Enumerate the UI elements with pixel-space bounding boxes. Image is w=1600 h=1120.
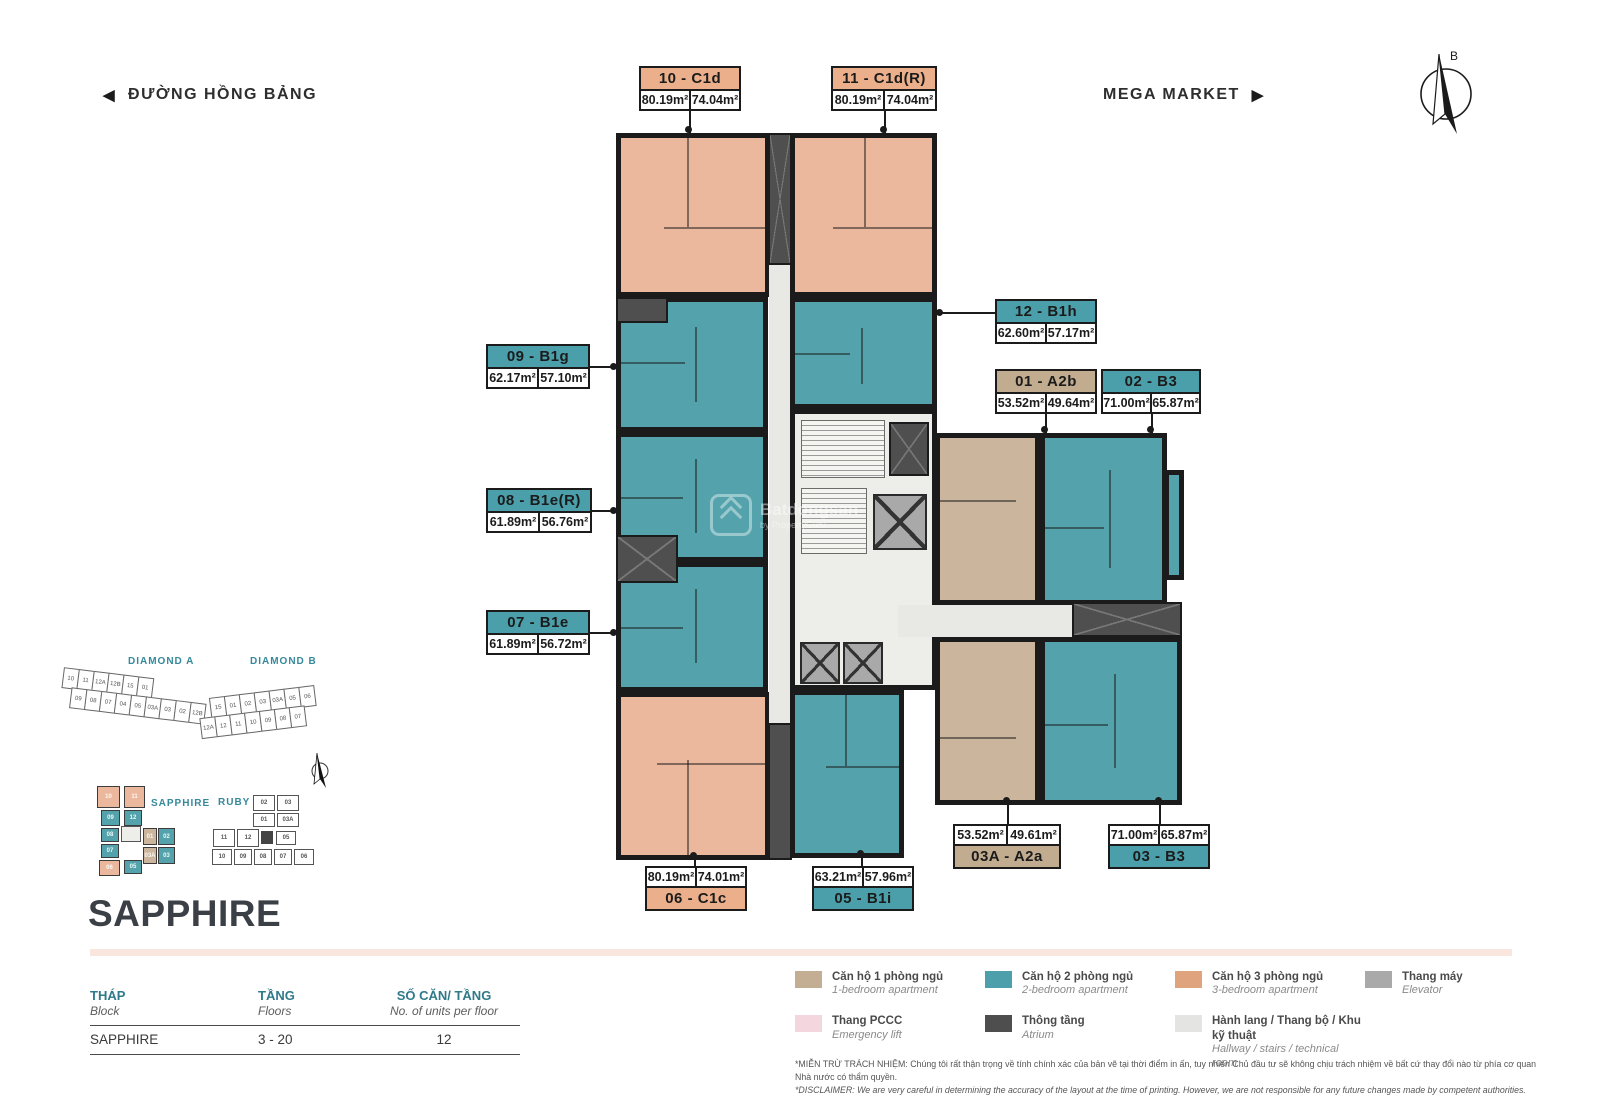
minimap-ruby-unit: 10 bbox=[212, 849, 232, 865]
leader-dot bbox=[685, 126, 692, 133]
minimap-title-diamond-b: DIAMOND B bbox=[250, 656, 317, 667]
unit-10-c1d bbox=[616, 133, 770, 297]
legend-label-en: Emergency lift bbox=[832, 1029, 902, 1043]
legend-label-vn: Thang máy bbox=[1402, 970, 1463, 984]
disclaimer-vn: *MIỄN TRỪ TRÁCH NHIỆM: Chúng tôi rất thậ… bbox=[795, 1058, 1553, 1084]
unit-label-11: 11 - C1d(R) 80.19m²74.04m² bbox=[831, 66, 937, 111]
unit-06-c1c bbox=[616, 692, 770, 860]
leader-dot bbox=[857, 850, 864, 857]
minimap-title-ruby: RUBY bbox=[218, 797, 250, 808]
minimap-title-sapphire: SAPPHIRE bbox=[151, 798, 210, 809]
leader-dot bbox=[1147, 426, 1154, 433]
compass-icon: B bbox=[1412, 46, 1476, 147]
interior-wall bbox=[687, 138, 689, 227]
area-gross: 53.52m² bbox=[997, 394, 1045, 412]
minimap-ruby-unit: 05 bbox=[276, 831, 296, 845]
legend-label-vn: Căn hộ 2 phòng ngủ bbox=[1022, 970, 1133, 984]
minimap-sapphire-unit: 07 bbox=[101, 844, 119, 858]
area-gross: 80.19m² bbox=[647, 868, 695, 886]
unit-05-b1i bbox=[790, 690, 904, 858]
area-gross: 80.19m² bbox=[641, 91, 689, 109]
unit-11-c1d-r bbox=[790, 133, 937, 297]
interior-wall bbox=[657, 763, 765, 765]
minimap-sapphire-unit: 11 bbox=[124, 786, 145, 808]
legend-label-vn: Thông tầng bbox=[1022, 1014, 1085, 1028]
minimap-sapphire-core bbox=[121, 826, 141, 842]
disclaimer-en: *DISCLAIMER: We are very careful in dete… bbox=[795, 1084, 1553, 1097]
minimap-ruby-core bbox=[261, 831, 273, 844]
unit-code: 01 - A2b bbox=[995, 369, 1097, 394]
table-header-block: THÁP Block bbox=[90, 988, 258, 1018]
interior-wall bbox=[864, 138, 866, 227]
minimap-sapphire-unit: 09 bbox=[101, 810, 120, 826]
interior-wall bbox=[833, 227, 932, 229]
unit-label-07: 07 - B1e 61.89m²56.72m² bbox=[486, 610, 590, 655]
interior-wall bbox=[1045, 527, 1104, 529]
unit-03-b3 bbox=[1040, 637, 1182, 805]
area-gross: 71.00m² bbox=[1103, 394, 1150, 412]
leader-dot bbox=[1003, 797, 1010, 804]
area-net: 57.10m² bbox=[537, 369, 588, 387]
legend-swatch bbox=[985, 971, 1012, 988]
unit-areas: 53.52m²49.64m² bbox=[995, 394, 1097, 414]
unit-areas: 63.21m²57.96m² bbox=[812, 866, 914, 886]
disclaimer: *MIỄN TRỪ TRÁCH NHIỆM: Chúng tôi rất thậ… bbox=[795, 1058, 1553, 1098]
area-gross: 62.60m² bbox=[997, 324, 1045, 342]
watermark-sub: by PropertyGuru bbox=[760, 520, 858, 530]
minimap-ruby-unit: 08 bbox=[254, 849, 272, 865]
interior-wall bbox=[695, 327, 697, 402]
interior-wall bbox=[1114, 674, 1116, 769]
divider bbox=[90, 949, 1512, 956]
leader-line bbox=[1007, 801, 1009, 826]
watermark: Batdongsan by PropertyGuru bbox=[710, 494, 858, 536]
legend-label-en: 3-bedroom apartment bbox=[1212, 984, 1323, 998]
unit-areas: 71.00m²65.87m² bbox=[1108, 824, 1210, 844]
unit-label-08: 08 - B1e(R) 61.89m²56.76m² bbox=[486, 488, 592, 533]
elevator bbox=[800, 642, 840, 684]
watermark-logo-icon bbox=[710, 494, 752, 536]
unit-label-06: 06 - C1c 80.19m²74.01m² bbox=[645, 866, 747, 911]
legend-item: Căn hộ 2 phòng ngủ 2-bedroom apartment bbox=[985, 970, 1175, 998]
unit-code: 05 - B1i bbox=[812, 886, 914, 911]
minimap-ruby-unit: 07 bbox=[274, 849, 292, 865]
minimap-sapphire-unit: 05 bbox=[124, 860, 142, 874]
side-shaft bbox=[616, 535, 678, 583]
unit-areas: 61.89m²56.72m² bbox=[486, 635, 590, 655]
interior-wall bbox=[1045, 724, 1108, 726]
legend-item: Căn hộ 3 phòng ngủ 3-bedroom apartment bbox=[1175, 970, 1365, 998]
leader-dot bbox=[936, 309, 943, 316]
area-gross: 61.89m² bbox=[488, 635, 537, 653]
unit-areas: 61.89m²56.76m² bbox=[486, 513, 592, 533]
interior-wall bbox=[795, 353, 850, 355]
minimap-sapphire-unit: 02 bbox=[158, 828, 175, 845]
table-cell-block: SAPPHIRE bbox=[90, 1032, 258, 1047]
area-gross: 80.19m² bbox=[833, 91, 883, 109]
unit-code: 07 - B1e bbox=[486, 610, 590, 635]
minimap-compass-icon bbox=[306, 750, 334, 797]
street-name: ĐƯỜNG HỒNG BẢNG bbox=[128, 86, 317, 104]
building-core bbox=[790, 409, 937, 690]
area-net: 65.87m² bbox=[1158, 826, 1208, 844]
legend-swatch bbox=[1175, 1015, 1202, 1032]
minimap-diamond-a: 101112A12B1501 090807040503A030212B bbox=[60, 667, 209, 724]
legend: Căn hộ 1 phòng ngủ 1-bedroom apartment C… bbox=[795, 970, 1555, 1070]
unit-code: 09 - B1g bbox=[486, 344, 590, 369]
area-net: 49.61m² bbox=[1006, 826, 1059, 844]
legend-label-vn: Thang PCCC bbox=[832, 1014, 902, 1028]
legend-swatch bbox=[795, 971, 822, 988]
minimap-sapphire-unit: 12 bbox=[124, 810, 142, 826]
unit-areas: 71.00m²65.87m² bbox=[1101, 394, 1201, 414]
leader-dot bbox=[1041, 426, 1048, 433]
table-header-units: SỐ CĂN/ TẦNG No. of units per floor bbox=[368, 988, 520, 1018]
area-net: 74.04m² bbox=[883, 91, 935, 109]
legend-label-en: Atrium bbox=[1022, 1029, 1085, 1043]
leader-dot bbox=[690, 852, 697, 859]
minimap-ruby-unit: 11 bbox=[213, 829, 235, 847]
elevator-shaft bbox=[889, 422, 929, 476]
unit-label-01: 01 - A2b 53.52m²49.64m² bbox=[995, 369, 1097, 414]
table-rule bbox=[90, 1054, 520, 1055]
arrow-right-icon: ▶ bbox=[1252, 86, 1265, 104]
leader-dot bbox=[610, 363, 617, 370]
minimap-ruby-unit: 12 bbox=[237, 829, 259, 847]
interior-wall bbox=[621, 627, 683, 629]
interior-wall bbox=[621, 362, 685, 364]
minimap-sapphire-unit: 03 bbox=[158, 847, 175, 864]
legend-item: Thang máy Elevator bbox=[1365, 970, 1555, 998]
legend-label-en: Elevator bbox=[1402, 984, 1463, 998]
legend-swatch bbox=[1365, 971, 1392, 988]
area-net: 49.64m² bbox=[1045, 394, 1095, 412]
legend-swatch bbox=[985, 1015, 1012, 1032]
interior-wall bbox=[687, 760, 689, 855]
arrow-left-icon: ◀ bbox=[103, 86, 116, 104]
unit-areas: 62.17m²57.10m² bbox=[486, 369, 590, 389]
minimap-title-diamond-a: DIAMOND A bbox=[128, 656, 194, 667]
unit-12-b1h bbox=[790, 297, 937, 409]
table-cell-floors: 3 - 20 bbox=[258, 1032, 368, 1047]
unit-areas: 80.19m²74.01m² bbox=[645, 866, 747, 886]
street-label-left: ◀ ĐƯỜNG HỒNG BẢNG bbox=[103, 86, 317, 104]
block-info-table: THÁP Block TẦNG Floors SỐ CĂN/ TẦNG No. … bbox=[90, 988, 520, 1061]
interior-wall bbox=[695, 589, 697, 663]
watermark-brand: Batdongsan bbox=[760, 500, 858, 520]
legend-swatch bbox=[795, 1015, 822, 1032]
elevator bbox=[873, 494, 927, 550]
area-gross: 53.52m² bbox=[955, 826, 1006, 844]
area-gross: 63.21m² bbox=[814, 868, 862, 886]
unit-02-b3 bbox=[1040, 433, 1167, 605]
unit-label-03: 03 - B3 71.00m²65.87m² bbox=[1108, 824, 1210, 869]
unit-code: 02 - B3 bbox=[1101, 369, 1201, 394]
unit-code: 10 - C1d bbox=[639, 66, 741, 91]
interior-wall bbox=[861, 328, 863, 384]
minimap-ruby-unit: 01 bbox=[253, 813, 275, 827]
area-net: 57.96m² bbox=[862, 868, 912, 886]
unit-code: 11 - C1d(R) bbox=[831, 66, 937, 91]
minimap-unit-cell: 07 bbox=[289, 705, 307, 728]
unit-label-12: 12 - B1h 62.60m²57.17m² bbox=[995, 299, 1097, 344]
unit-label-05: 05 - B1i 63.21m²57.96m² bbox=[812, 866, 914, 911]
interior-wall bbox=[664, 227, 765, 229]
street-label-right: MEGA MARKET ▶ bbox=[1103, 86, 1265, 104]
corridor-horizontal bbox=[898, 605, 1072, 637]
leader-dot bbox=[610, 507, 617, 514]
unit-code: 03 - B3 bbox=[1108, 844, 1210, 869]
staircase bbox=[801, 420, 885, 478]
unit-label-10: 10 - C1d 80.19m²74.04m² bbox=[639, 66, 741, 111]
area-gross: 71.00m² bbox=[1110, 826, 1158, 844]
unit-code: 12 - B1h bbox=[995, 299, 1097, 324]
table-header-floors: TẦNG Floors bbox=[258, 988, 368, 1018]
unit-areas: 53.52m²49.61m² bbox=[953, 824, 1061, 844]
elevator bbox=[843, 642, 883, 684]
legend-item: Căn hộ 1 phòng ngủ 1-bedroom apartment bbox=[795, 970, 985, 998]
street-name: MEGA MARKET bbox=[1103, 86, 1240, 104]
minimap-sapphire-unit: 06 bbox=[99, 860, 120, 876]
legend-label-en: 1-bedroom apartment bbox=[832, 984, 943, 998]
minimap-diamond-b: 1501020303A0506 12A121110090807 bbox=[198, 685, 319, 739]
minimap-sapphire-unit: 10 bbox=[97, 786, 120, 808]
unit-areas: 80.19m²74.04m² bbox=[831, 91, 937, 111]
interior-wall bbox=[940, 737, 1016, 739]
unit-01-a2b bbox=[935, 433, 1040, 605]
area-net: 74.04m² bbox=[689, 91, 739, 109]
area-gross: 61.89m² bbox=[488, 513, 538, 531]
block-title: SAPPHIRE bbox=[88, 893, 281, 935]
area-net: 65.87m² bbox=[1150, 394, 1199, 412]
interior-wall bbox=[845, 695, 847, 766]
unit-label-02: 02 - B3 71.00m²65.87m² bbox=[1101, 369, 1201, 414]
compass-north-label: B bbox=[1450, 49, 1458, 63]
technical-shaft-lower bbox=[768, 723, 792, 860]
minimap-ruby-unit: 09 bbox=[234, 849, 252, 865]
unit-03a-a2a bbox=[935, 637, 1040, 805]
unit-code: 06 - C1c bbox=[645, 886, 747, 911]
unit-areas: 62.60m²57.17m² bbox=[995, 324, 1097, 344]
area-net: 74.01m² bbox=[695, 868, 745, 886]
legend-label-vn: Căn hộ 1 phòng ngủ bbox=[832, 970, 943, 984]
leader-line bbox=[1159, 801, 1161, 826]
interior-wall bbox=[695, 459, 697, 533]
leader-dot bbox=[880, 126, 887, 133]
interior-wall bbox=[1109, 470, 1111, 567]
minimap-ruby-unit: 02 bbox=[253, 795, 275, 811]
legend-label-vn: Căn hộ 3 phòng ngủ bbox=[1212, 970, 1323, 984]
table-rule bbox=[90, 1025, 520, 1026]
legend-label-vn: Hành lang / Thang bộ / Khu kỹ thuật bbox=[1212, 1014, 1365, 1043]
minimap-ruby-unit: 03A bbox=[277, 813, 299, 827]
floorplan-page: ◀ ĐƯỜNG HỒNG BẢNG MEGA MARKET ▶ B bbox=[0, 0, 1600, 1120]
minimap-sapphire-unit: 01 bbox=[143, 828, 157, 845]
unit-code: 03A - A2a bbox=[953, 844, 1061, 869]
leader-line bbox=[940, 312, 995, 314]
minimap-sapphire-unit: 08 bbox=[101, 828, 119, 842]
unit-label-09: 09 - B1g 62.17m²57.10m² bbox=[486, 344, 590, 389]
leader-dot bbox=[1155, 797, 1162, 804]
minimap-sapphire-unit: 03A bbox=[143, 847, 157, 864]
unit-02-b3-extension bbox=[1164, 470, 1184, 580]
legend-label-en: 2-bedroom apartment bbox=[1022, 984, 1133, 998]
unit-label-03a: 03A - A2a 53.52m²49.61m² bbox=[953, 824, 1061, 869]
minimap-unit-cell: 06 bbox=[298, 685, 316, 708]
minimap-ruby-unit: 06 bbox=[294, 849, 314, 865]
area-net: 56.76m² bbox=[538, 513, 590, 531]
interior-wall bbox=[826, 766, 899, 768]
interior-wall bbox=[940, 500, 1016, 502]
legend-swatch bbox=[1175, 971, 1202, 988]
interior-wall bbox=[621, 497, 683, 499]
unit-areas: 80.19m²74.04m² bbox=[639, 91, 741, 111]
side-shaft bbox=[616, 297, 668, 323]
leader-dot bbox=[610, 629, 617, 636]
area-net: 57.17m² bbox=[1045, 324, 1095, 342]
minimap-ruby-unit: 03 bbox=[277, 795, 299, 811]
technical-shaft bbox=[768, 133, 792, 265]
area-gross: 62.17m² bbox=[488, 369, 537, 387]
table-cell-units: 12 bbox=[368, 1032, 520, 1047]
technical-shaft-east bbox=[1072, 602, 1182, 637]
area-net: 56.72m² bbox=[537, 635, 588, 653]
unit-code: 08 - B1e(R) bbox=[486, 488, 592, 513]
